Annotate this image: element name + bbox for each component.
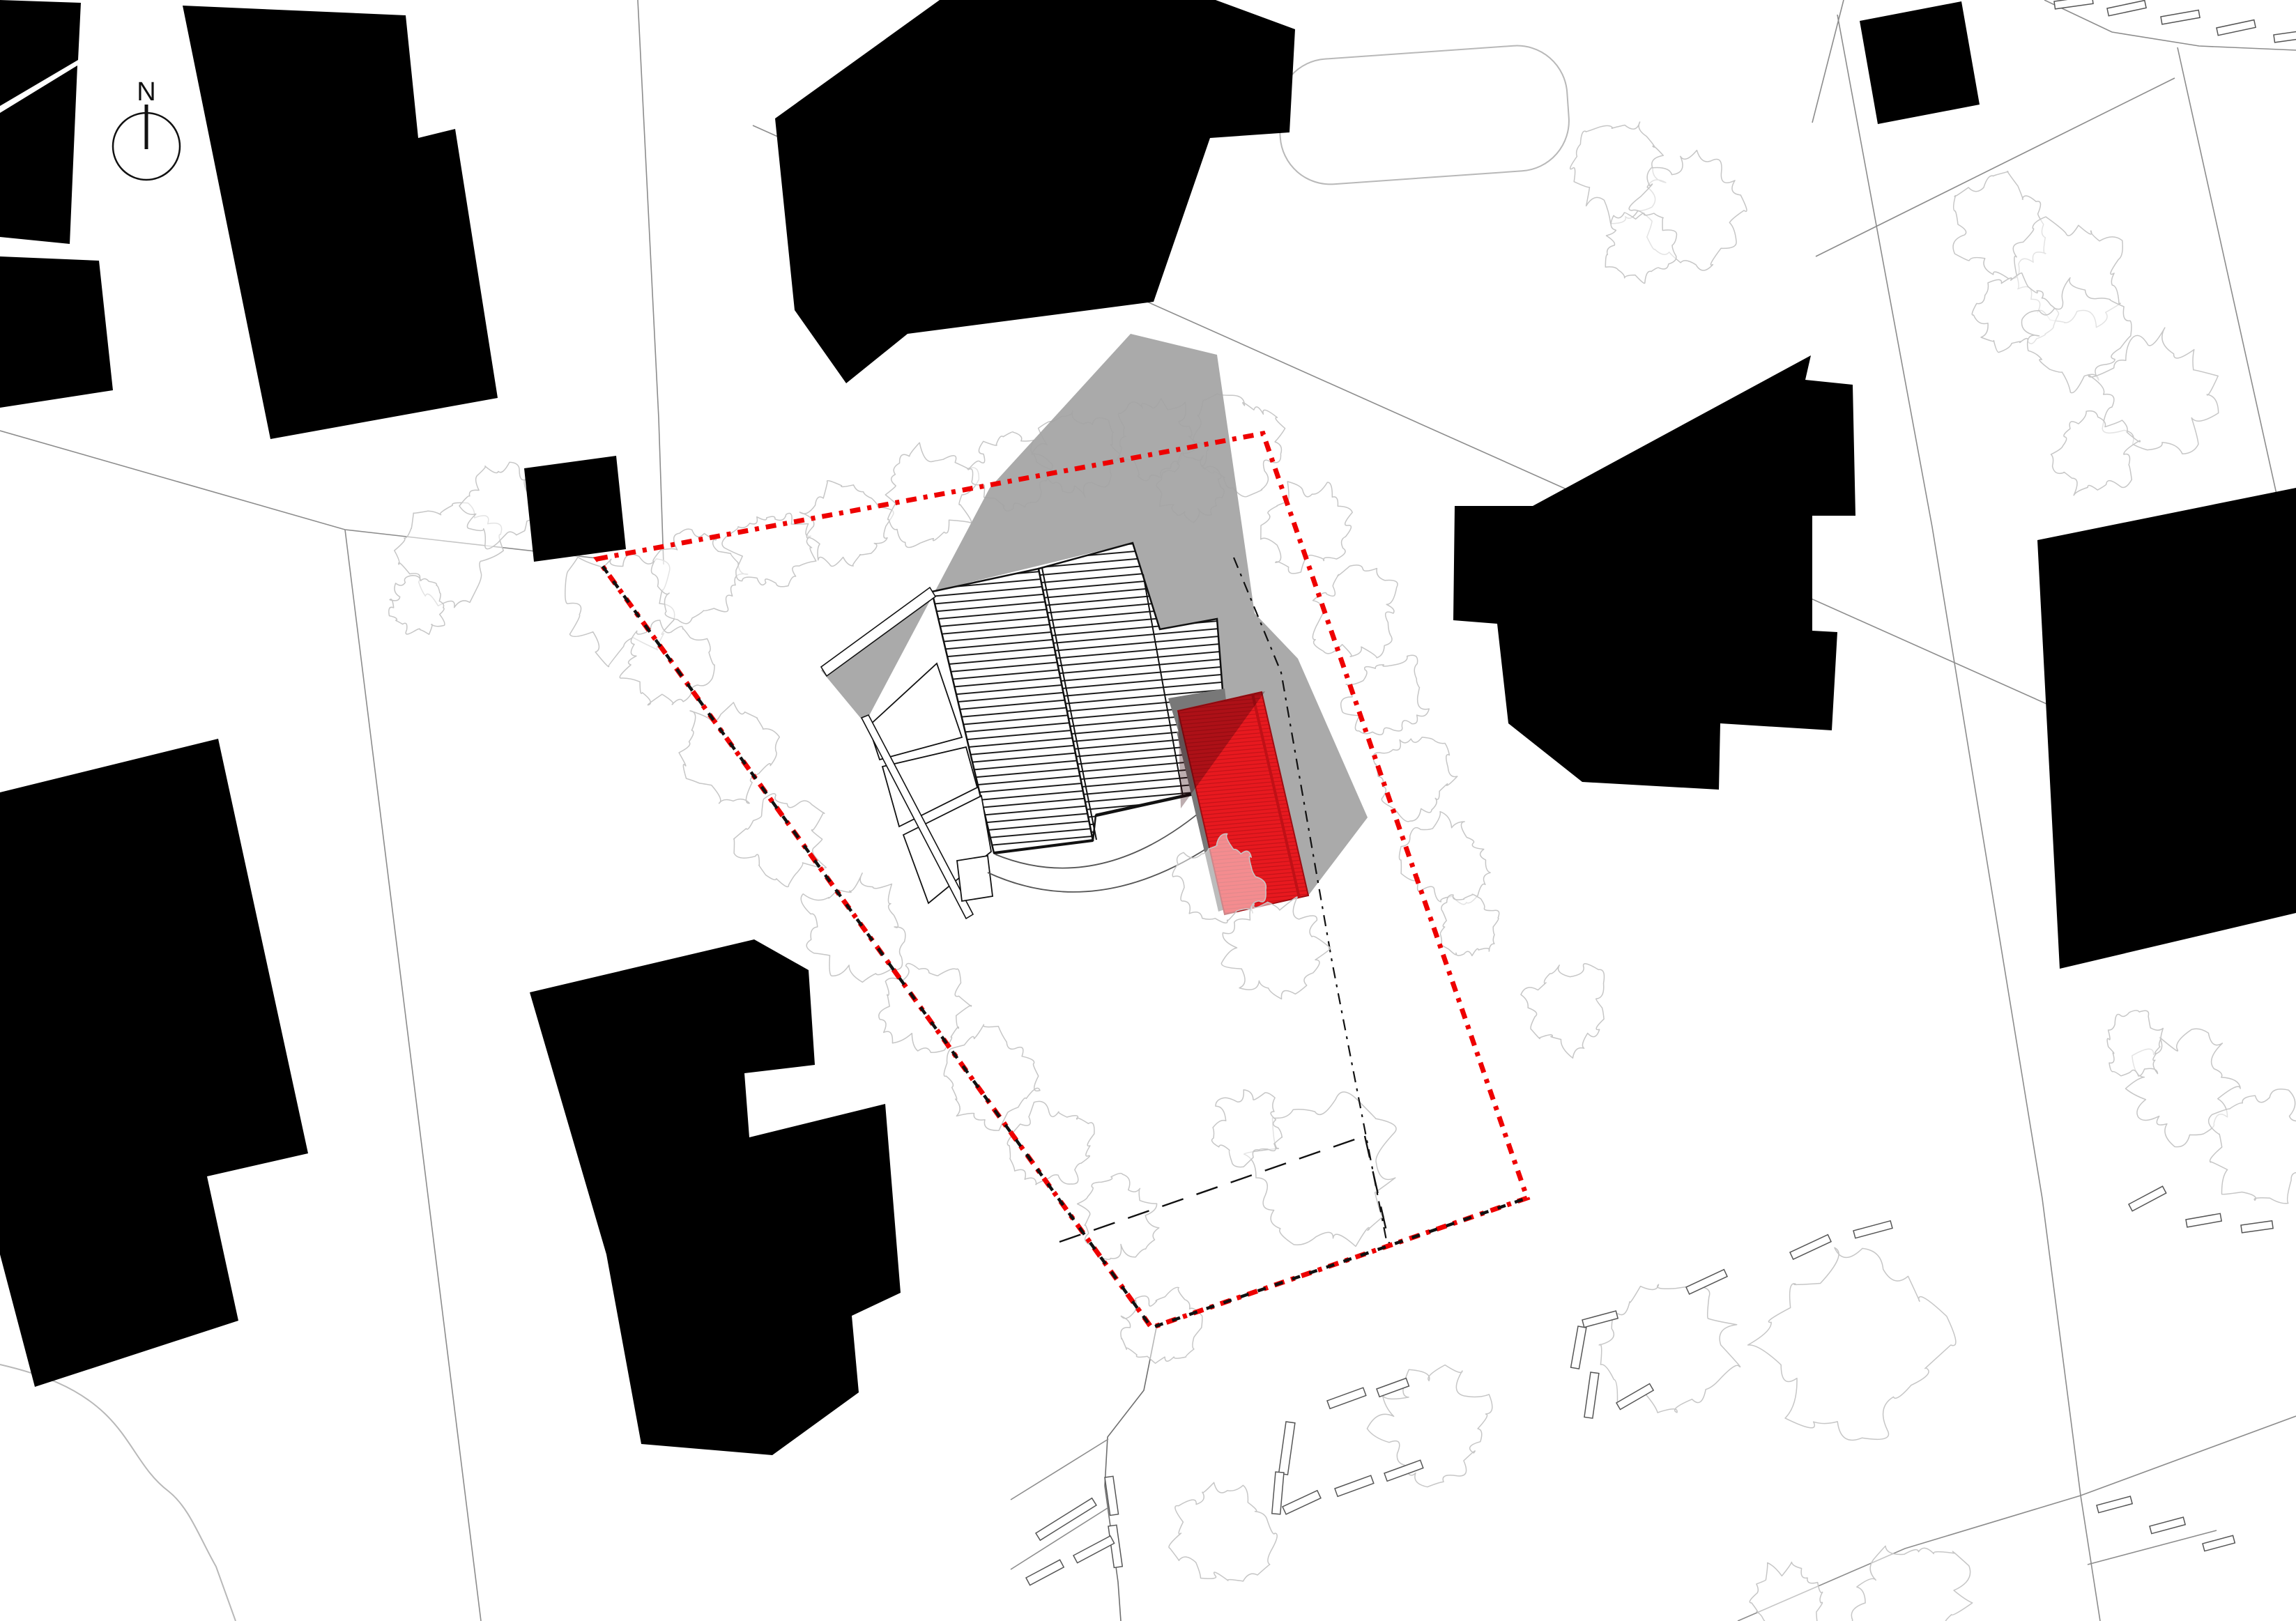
entry-step [957, 856, 993, 901]
compass-north-label: N [137, 77, 155, 107]
building-left-edge-b [0, 256, 113, 408]
building-topright-small [1860, 1, 1980, 124]
site-plan-page: N [0, 0, 2296, 1621]
site-plan-canvas: N [0, 0, 2296, 1621]
building-small-square [524, 456, 626, 562]
building-right-edge [2037, 488, 2296, 969]
pond-outline [1275, 43, 1572, 188]
